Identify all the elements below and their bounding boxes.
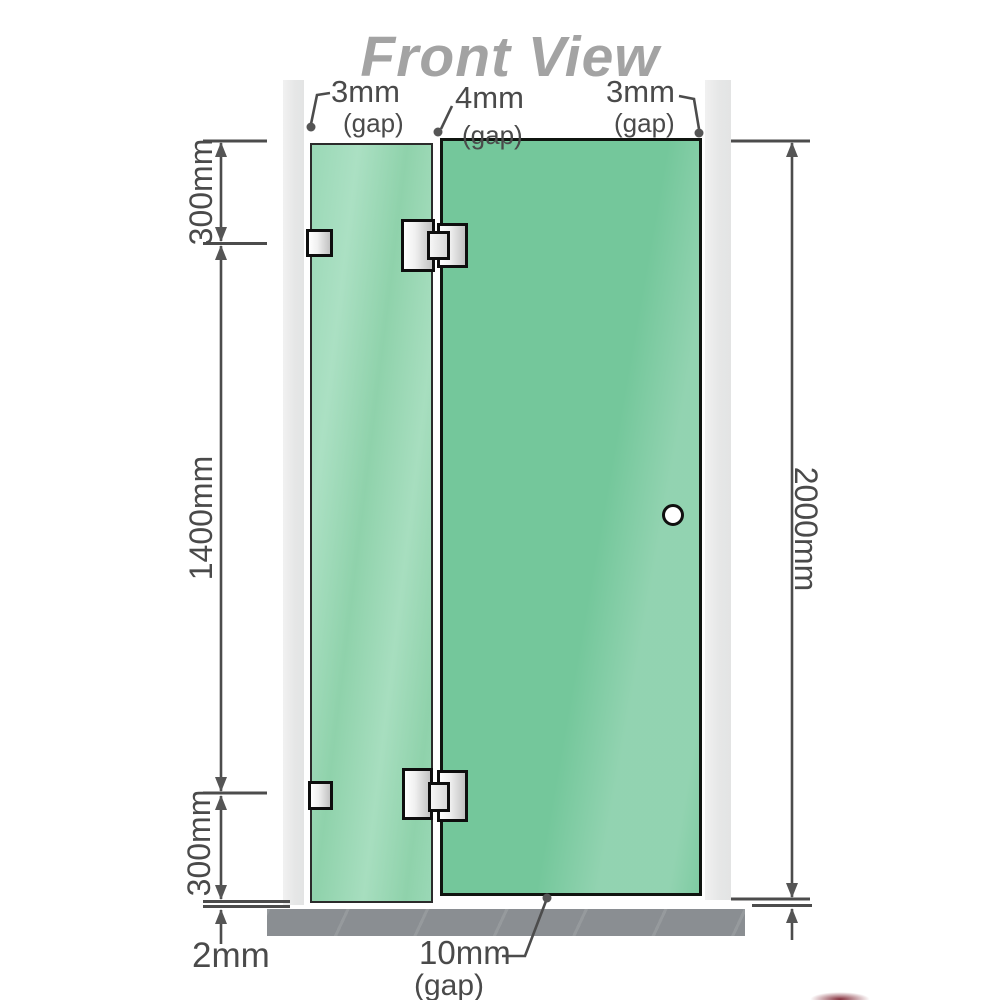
gap-bottom-suffix: (gap) bbox=[414, 971, 511, 1000]
right-wall bbox=[705, 80, 731, 900]
gap-top-left-suffix: (gap) bbox=[343, 110, 404, 136]
watermark-artifact bbox=[810, 992, 870, 1000]
annotation-floor-gap: 2mm bbox=[192, 938, 270, 973]
annotation-segment-top: 300mm bbox=[185, 139, 217, 246]
wall-bracket-bottom bbox=[308, 781, 333, 810]
door-handle-knob bbox=[662, 504, 684, 526]
hinge-top-knuckle bbox=[427, 231, 450, 260]
gap-top-left-value: 3mm bbox=[331, 76, 404, 107]
annotation-gap-bottom: 10mm (gap) bbox=[414, 936, 511, 1000]
gap-top-middle-value: 4mm bbox=[455, 82, 524, 113]
annotation-segment-bottom: 300mm bbox=[183, 790, 215, 897]
gap-top-right-value: 3mm bbox=[606, 76, 675, 107]
annotation-gap-top-right: 3mm (gap) bbox=[606, 76, 675, 136]
annotation-segment-middle: 1400mm bbox=[185, 456, 217, 581]
gap-bottom-value: 10mm bbox=[419, 936, 511, 969]
floor-base bbox=[267, 909, 745, 936]
front-view-diagram: Front View bbox=[0, 0, 1000, 1000]
wall-bracket-top bbox=[306, 229, 333, 257]
hinge-bottom-knuckle bbox=[428, 782, 450, 812]
gap-top-middle-suffix: (gap) bbox=[462, 122, 524, 148]
left-wall bbox=[283, 80, 304, 905]
annotation-gap-top-left: 3mm (gap) bbox=[331, 76, 404, 136]
annotation-gap-top-middle: 4mm (gap) bbox=[455, 82, 524, 148]
gap-top-right-suffix: (gap) bbox=[614, 110, 675, 136]
annotation-overall-height: 2000mm bbox=[790, 467, 822, 592]
